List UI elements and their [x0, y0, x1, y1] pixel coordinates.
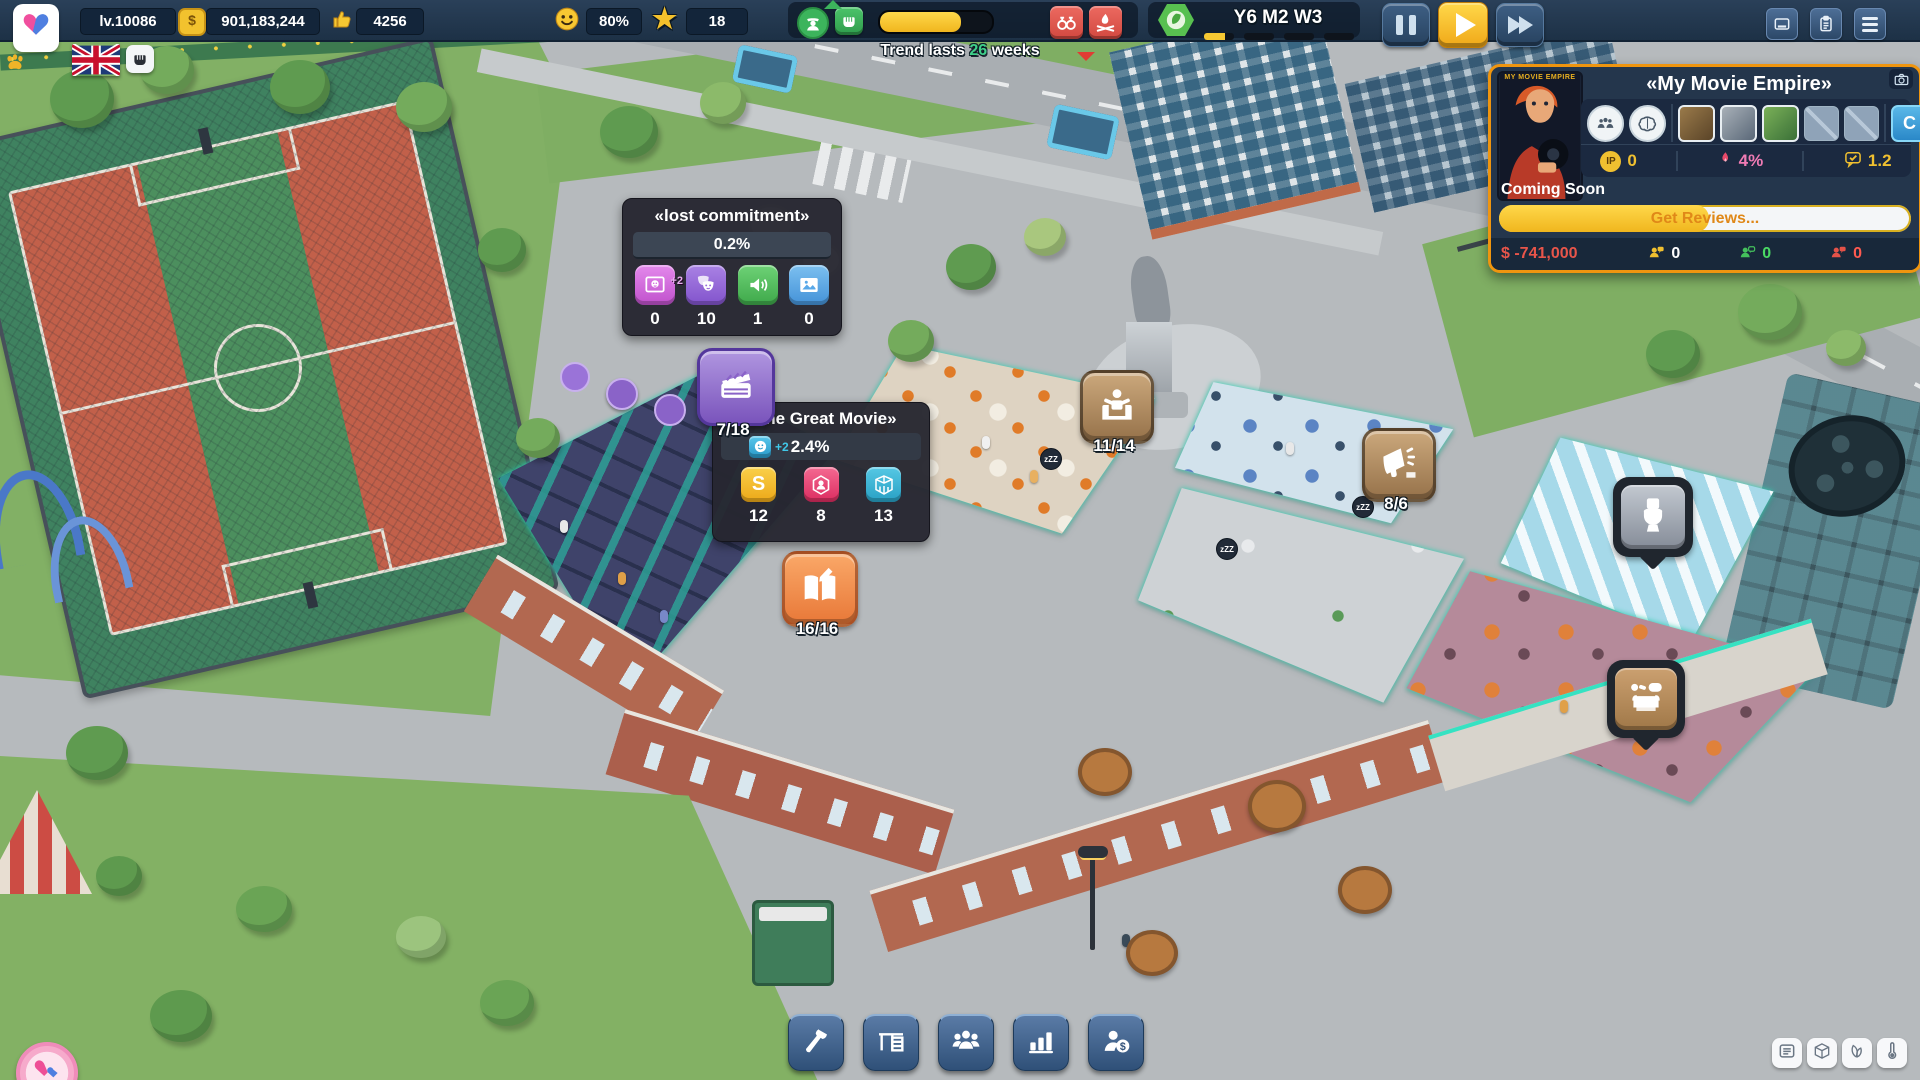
marketing-room-count: 8/6: [1362, 494, 1430, 514]
cube-icon: [1812, 1041, 1832, 1066]
poster-caption-text: MY MOVIE EMPIRE: [1504, 74, 1575, 81]
stat-value: 0: [650, 309, 659, 329]
movie-release-panel[interactable]: MY MOVIE EMPIRE «My Movie Empire»: [1488, 64, 1920, 273]
pause-icon: [1396, 15, 1416, 35]
armchair-person-icon: [1095, 383, 1139, 432]
trend-police-icon[interactable]: [797, 7, 829, 39]
heat-flame-icon: [1717, 149, 1734, 174]
lounge-room-count: 11/14: [1080, 436, 1148, 456]
trend-prefix: Trend lasts: [880, 42, 964, 59]
build-button[interactable]: [788, 1014, 844, 1071]
fast-forward-button[interactable]: [1496, 3, 1544, 47]
writing-room-count: 16/16: [782, 619, 852, 639]
break-tile: [1615, 668, 1677, 730]
play-icon: [1456, 13, 1476, 37]
viewer-red-count: 0: [1853, 245, 1862, 263]
person-dollar-icon: $: [1099, 1024, 1133, 1063]
objects-button[interactable]: [1807, 1038, 1837, 1068]
week-segment: [1284, 33, 1314, 40]
buff-badge: +2: [775, 440, 789, 454]
level-label: lv.10086: [99, 13, 156, 30]
money-value: 901,183,244: [221, 13, 304, 30]
environment-button[interactable]: [1842, 1038, 1872, 1068]
ip-icon: IP: [1600, 151, 1621, 172]
stat-picture: 0: [789, 265, 829, 329]
tree: [600, 106, 658, 158]
thermometer-icon: [1882, 1041, 1902, 1066]
tree: [1646, 330, 1700, 378]
slot-row: C: [1587, 104, 1920, 142]
bush: [396, 916, 446, 958]
log-list-icon: [1777, 1041, 1797, 1066]
release-footer: $ -741,000 0 0 0: [1491, 238, 1919, 270]
kiosk: [752, 900, 834, 986]
paw-icon: [2, 50, 28, 76]
empty-slot[interactable]: [1844, 106, 1879, 141]
character: [1030, 470, 1038, 483]
bottom-toolbar: $: [788, 1014, 1144, 1071]
game-viewport: zZZ zZZ zZZ: [0, 0, 1920, 1080]
character: [560, 520, 568, 533]
hearts-icon: [30, 1054, 64, 1080]
tree: [1738, 284, 1802, 340]
stat-studio: 13: [866, 467, 901, 526]
happiness-icon: [554, 6, 580, 32]
slot-divider: [1884, 104, 1886, 142]
bush: [96, 856, 142, 896]
script-glyph: S: [752, 473, 765, 496]
release-status: Coming Soon: [1501, 181, 1605, 199]
stat-value: 10: [697, 309, 716, 329]
app-logo[interactable]: [13, 4, 59, 52]
continue-slot-label: C: [1903, 113, 1916, 134]
genre-bubble-icon: [606, 378, 638, 410]
finance-button[interactable]: $: [1088, 1014, 1144, 1071]
character: [982, 436, 990, 449]
hammer-icon: [800, 1025, 832, 1062]
sleep-bubble: zZZ: [1216, 538, 1238, 560]
studio-icon: [866, 467, 901, 502]
toilet-room-badge[interactable]: [1613, 477, 1693, 557]
stat-actor: 8: [804, 467, 839, 526]
movie-title-text: «My Movie Empire»: [1646, 73, 1832, 95]
writing-count-text: 16/16: [796, 619, 839, 638]
marketing-room-badge[interactable]: [1362, 428, 1436, 502]
bush: [150, 990, 212, 1042]
sleep-bubble: zZZ: [1040, 448, 1062, 470]
scene-thumbnail[interactable]: [1720, 105, 1757, 142]
stat-speaker: 1: [738, 265, 778, 329]
movie-title: «My Movie Empire»: [1581, 73, 1897, 96]
movie-stats-row: IP 0 4% 1.2: [1581, 144, 1911, 177]
kiosk-sign: [759, 907, 827, 921]
viewers-positive: 0: [1737, 243, 1828, 266]
character: [1560, 700, 1568, 713]
viewers-negative: 0: [1828, 243, 1919, 266]
viewer-green-count: 0: [1762, 245, 1771, 263]
actor-icon: [804, 467, 839, 502]
marketing-count-text: 8/6: [1384, 494, 1408, 513]
rating-stat: 1.2: [1843, 149, 1892, 174]
production-count-text: 7/18: [716, 420, 749, 439]
week-segment: [1204, 33, 1234, 40]
utility-buttons: [1772, 1038, 1907, 1068]
release-progress-text: Get Reviews...: [1651, 210, 1760, 227]
tree: [50, 70, 114, 128]
tree: [888, 320, 934, 362]
rating-value: 1.2: [1868, 151, 1892, 171]
picture-icon: [789, 265, 829, 305]
sofa-gamepad-icon: [1625, 676, 1667, 723]
happiness-value: 80%: [599, 13, 629, 30]
lamp-head: [1078, 846, 1108, 858]
continue-slot-button[interactable]: C: [1891, 105, 1920, 142]
trend-tooltip-percent: 0.2%: [714, 236, 750, 253]
tree: [396, 82, 452, 132]
tasks-clipboard-button[interactable]: [1810, 8, 1842, 40]
week-segments: [1204, 33, 1354, 40]
week-progress-fill: [1204, 33, 1225, 40]
book-pen-icon: [797, 564, 843, 615]
ip-value: 0: [1627, 151, 1636, 171]
week-segment: [1244, 33, 1274, 40]
trend-fist-icon[interactable]: [835, 7, 863, 35]
ip-stat: IP 0: [1600, 151, 1636, 172]
production-percent: 2.4%: [791, 437, 830, 457]
character: [618, 572, 626, 585]
trend-tooltip: «lost commitment» 0.2% +2 0 10 1: [622, 198, 842, 336]
tree: [66, 726, 128, 780]
poster-caption: MY MOVIE EMPIRE: [1499, 74, 1581, 81]
trend-weeks: 26: [969, 42, 987, 59]
trend-down-arrow-icon: [1077, 52, 1095, 61]
character: [1286, 442, 1294, 455]
stat-value: 1: [753, 309, 762, 329]
bush: [480, 980, 534, 1026]
coin-glyph: $: [188, 12, 196, 28]
play-button[interactable]: [1438, 2, 1488, 48]
trend-tooltip-stats: +2 0 10 1 0: [635, 265, 829, 329]
money-pill: 901,183,244: [206, 8, 320, 35]
slot-divider: [1671, 104, 1673, 142]
protest-fist-button[interactable]: [126, 45, 154, 73]
like-icon: [330, 7, 354, 31]
trend-tooltip-percent-bar: 0.2%: [633, 232, 831, 259]
svg-text:$: $: [1120, 1040, 1126, 1052]
photo-mask-icon: +2: [635, 265, 675, 305]
bush: [236, 886, 292, 932]
toilet-tile: [1621, 485, 1685, 549]
audience-circle-icon[interactable]: [1587, 105, 1624, 142]
round-table: [1078, 748, 1132, 796]
round-table: [1338, 866, 1392, 914]
toilet-icon: [1632, 494, 1674, 541]
stat-value: 12: [749, 506, 768, 526]
fast-forward-icon: [1508, 16, 1533, 34]
stat-theater-masks: 10: [686, 265, 726, 329]
stat-value: 13: [874, 506, 893, 526]
week-segment: [1324, 33, 1354, 40]
star-icon: ★: [652, 2, 677, 35]
tree: [1024, 218, 1066, 256]
round-table: [1248, 780, 1306, 832]
heat-value: 4%: [1739, 151, 1764, 171]
release-cost: $ -741,000: [1501, 245, 1646, 263]
furniture-button[interactable]: [863, 1014, 919, 1071]
trend-campfire-icon[interactable]: [1089, 6, 1122, 39]
genre-bubble-icon: [560, 362, 590, 392]
brick-wall: [869, 720, 1446, 952]
menu-button[interactable]: [1854, 8, 1886, 40]
stars-value: 18: [709, 13, 726, 30]
lounge-room-badge[interactable]: [1080, 370, 1154, 444]
review-check-icon: [1843, 149, 1863, 174]
date-text: Y6 M2 W3: [1234, 7, 1323, 28]
camera-icon[interactable]: [1889, 69, 1913, 89]
megaphone-icon: [1377, 441, 1421, 490]
temperature-button[interactable]: [1877, 1038, 1907, 1068]
screenshot-button[interactable]: [1766, 8, 1798, 40]
window-buttons: [1766, 8, 1886, 40]
round-table: [1126, 930, 1178, 976]
stat-badge: +2: [670, 275, 683, 287]
viewers-interested: 0: [1646, 243, 1737, 266]
level-pill: lv.10086: [80, 8, 176, 35]
viewer-yellow-count: 0: [1671, 245, 1680, 263]
stat-divider: [1802, 151, 1804, 171]
sleep-text: zZZ: [1044, 455, 1058, 464]
tree: [946, 244, 996, 290]
coin-icon: $: [178, 8, 206, 36]
scene-thumbnail[interactable]: [1678, 105, 1715, 142]
tree: [478, 228, 526, 272]
bar-chart-icon: [1025, 1025, 1057, 1062]
likes-value: 4256: [373, 13, 406, 30]
tree: [700, 82, 746, 124]
production-stats: S 12 8 13: [741, 467, 901, 526]
lounge-count-text: 11/14: [1093, 436, 1135, 455]
log-button[interactable]: [1772, 1038, 1802, 1068]
trend-up-arrow-icon: [824, 0, 842, 9]
trend-progress-fill: [880, 12, 961, 32]
script-icon: S: [741, 467, 776, 502]
language-flag-uk[interactable]: [72, 44, 120, 76]
heat-stat: 4%: [1717, 149, 1764, 174]
statistics-button[interactable]: [1013, 1014, 1069, 1071]
genre-circle-icon[interactable]: [1629, 105, 1666, 142]
stat-value: 8: [816, 506, 825, 526]
production-clapper-badge[interactable]: [697, 348, 775, 426]
release-progress-label: Get Reviews...: [1499, 205, 1911, 232]
staff-button[interactable]: [938, 1014, 994, 1071]
break-room-badge[interactable]: [1607, 660, 1685, 738]
scene-thumbnail[interactable]: [1762, 105, 1799, 142]
happiness-pill: 80%: [586, 8, 642, 35]
character: [660, 610, 668, 623]
viewer-red-icon: [1828, 243, 1849, 266]
stat-divider: [1676, 151, 1678, 171]
hearts-logo-icon: [17, 7, 55, 50]
trend-tooltip-title: «lost commitment»: [623, 206, 841, 226]
speaker-icon: [738, 265, 778, 305]
trend-progress-bar: [878, 10, 994, 34]
street-lamp: [1090, 856, 1095, 950]
trend-duration-label: Trend lasts 26 weeks: [830, 42, 1090, 60]
tree: [270, 60, 330, 114]
likes-pill: 4256: [356, 8, 424, 35]
leaves-icon: [1847, 1041, 1867, 1066]
tree: [516, 418, 560, 458]
stat-script: S 12: [741, 467, 776, 526]
writing-room-badge[interactable]: [782, 551, 858, 627]
stat-value: 0: [804, 309, 813, 329]
trend-tooltip-title-text: «lost commitment»: [655, 206, 810, 225]
release-status-text: Coming Soon: [1501, 181, 1605, 198]
date-label: Y6 M2 W3: [1200, 7, 1356, 29]
genre-bubble-icon: [654, 394, 686, 426]
movie-slots-panel: C IP 0 4% 1.2: [1581, 99, 1911, 177]
empty-slot[interactable]: [1804, 106, 1839, 141]
theater-masks-icon: [686, 265, 726, 305]
ip-glyph: IP: [1606, 156, 1615, 167]
trend-suffix: weeks: [992, 42, 1040, 59]
stars-pill: 18: [686, 8, 748, 35]
production-count: 7/18: [683, 420, 783, 440]
stat-photo-mask: +2 0: [635, 265, 675, 329]
clapperboard-icon: [714, 363, 758, 412]
sleep-text: zZZ: [1220, 545, 1234, 554]
viewer-yellow-icon: [1646, 243, 1667, 266]
viewer-green-icon: [1737, 243, 1758, 266]
release-progress-bar: Get Reviews...: [1499, 205, 1911, 232]
pause-button[interactable]: [1382, 3, 1430, 47]
people-icon: [949, 1024, 983, 1063]
trend-handcuffs-icon[interactable]: [1050, 6, 1083, 39]
tree: [1826, 330, 1866, 366]
desk-icon: [875, 1025, 907, 1062]
menu-icon: [1862, 17, 1878, 32]
